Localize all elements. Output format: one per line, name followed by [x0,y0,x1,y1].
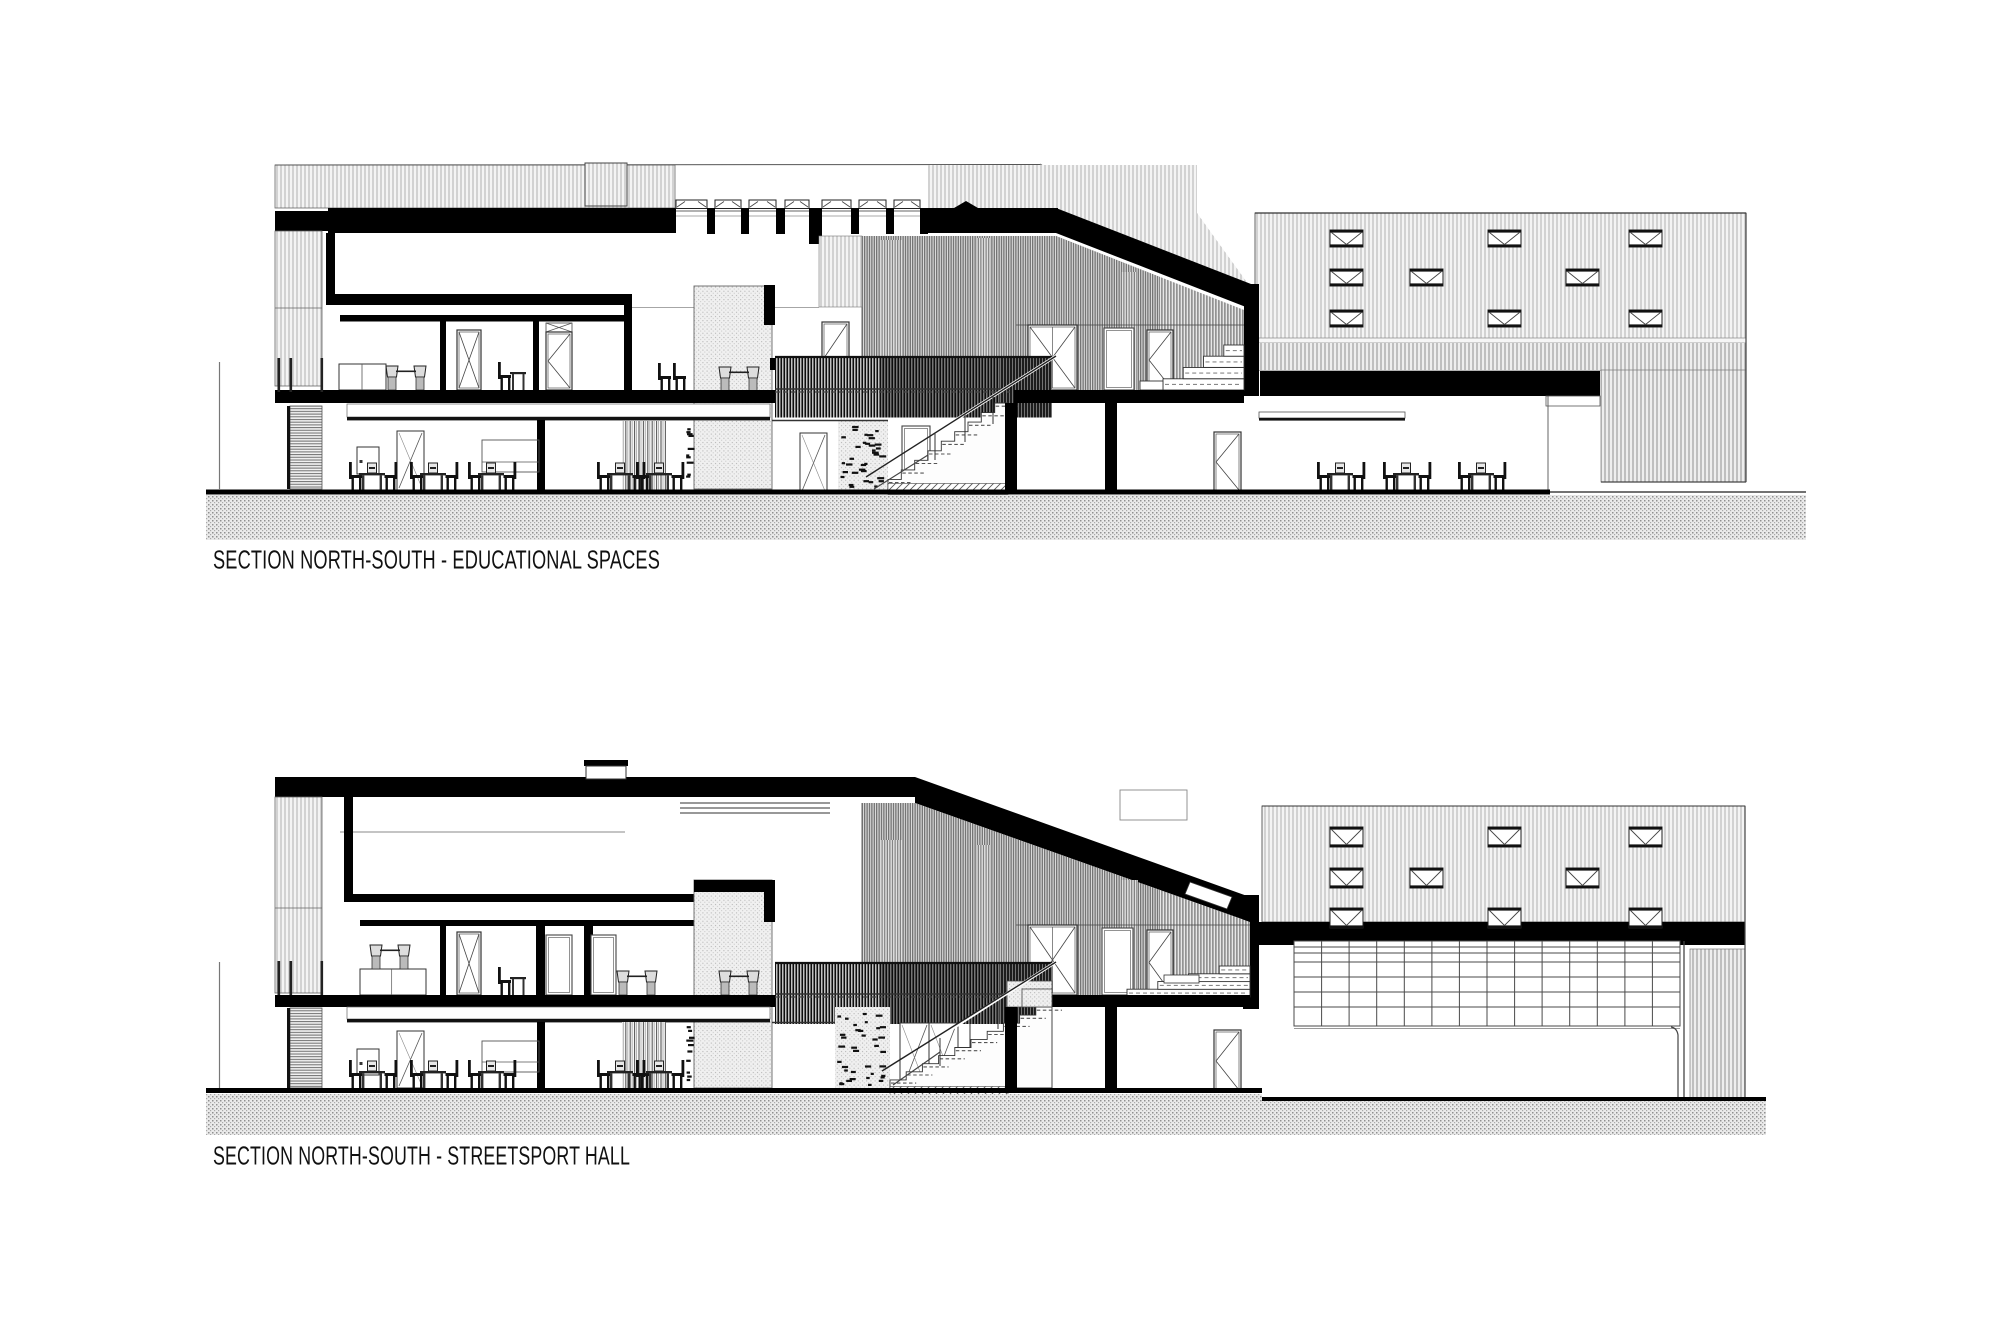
svg-text:SECTION NORTH-SOUTH - STREETSP: SECTION NORTH-SOUTH - STREETSPORT HALL [213,1141,630,1171]
svg-text:SECTION NORTH-SOUTH - EDUCATIO: SECTION NORTH-SOUTH - EDUCATIONAL SPACES [213,545,660,575]
